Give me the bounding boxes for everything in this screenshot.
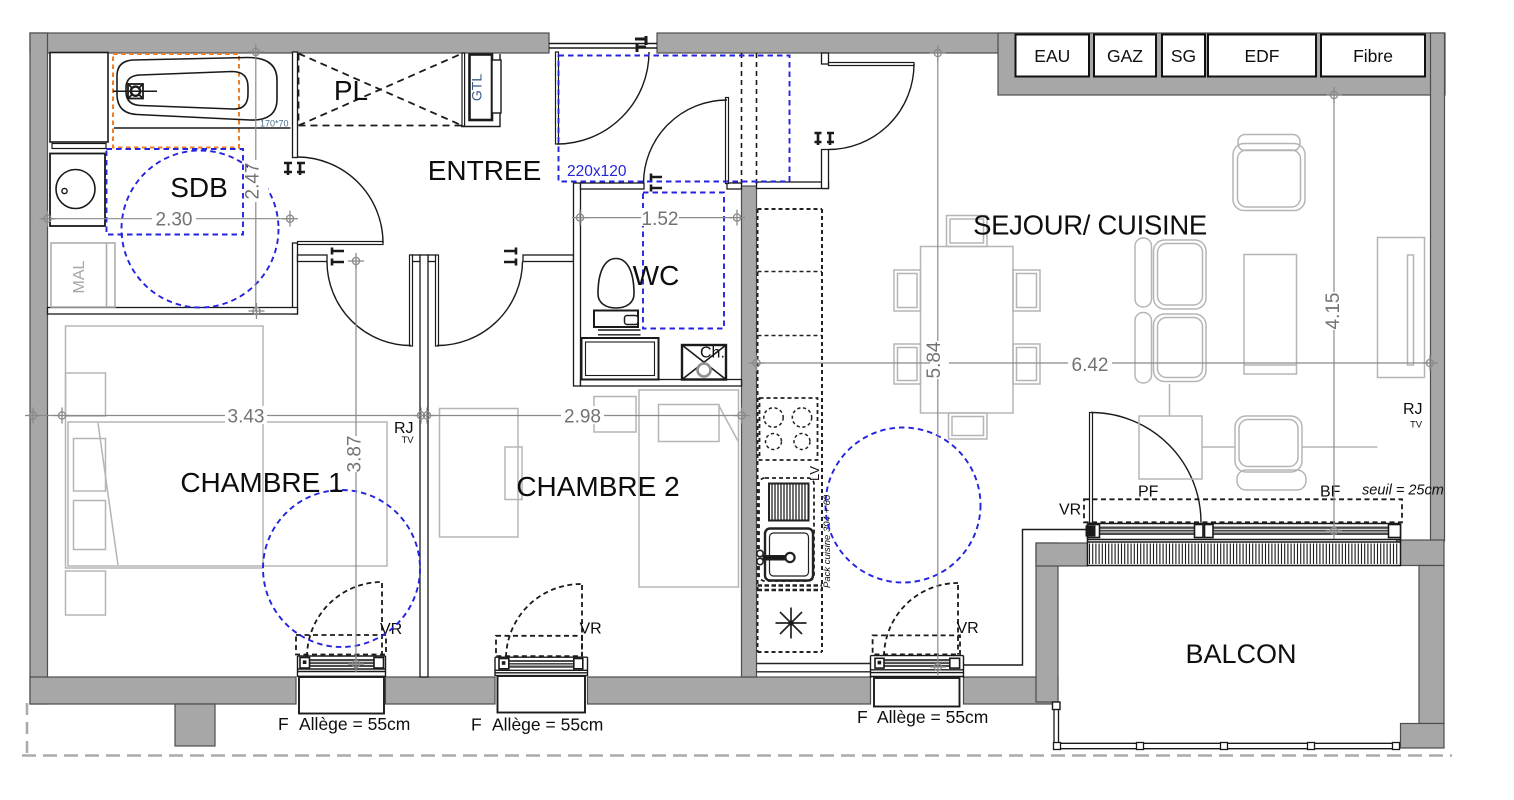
svg-text:F: F (471, 715, 482, 735)
svg-text:2.47: 2.47 (243, 163, 264, 200)
svg-text:CHAMBRE 2: CHAMBRE 2 (516, 471, 679, 502)
svg-text:6.42: 6.42 (1072, 355, 1109, 376)
svg-text:F: F (857, 707, 868, 727)
svg-text:Allège = 55cm: Allège = 55cm (299, 714, 410, 734)
svg-text:GAZ: GAZ (1107, 46, 1143, 66)
svg-text:ENTREE: ENTREE (428, 155, 542, 186)
svg-text:SEJOUR/ CUISINE: SEJOUR/ CUISINE (973, 210, 1207, 241)
svg-text:TV: TV (1410, 420, 1423, 431)
svg-text:PF: PF (1138, 484, 1159, 501)
svg-text:WC: WC (633, 260, 680, 291)
svg-text:F: F (278, 714, 289, 734)
svg-text:PL: PL (334, 75, 368, 106)
svg-text:EDF: EDF (1245, 46, 1280, 66)
svg-text:LV: LV (807, 466, 822, 481)
svg-text:3.87: 3.87 (345, 436, 366, 473)
svg-text:BF: BF (1320, 484, 1341, 501)
svg-text:4.15: 4.15 (1323, 293, 1344, 330)
svg-text:VR: VR (580, 621, 602, 638)
svg-text:VR: VR (957, 620, 979, 637)
svg-text:Allège = 55cm: Allège = 55cm (492, 715, 603, 735)
svg-text:BALCON: BALCON (1185, 639, 1296, 669)
svg-text:Fibre: Fibre (1353, 46, 1393, 66)
svg-text:seuil = 25cm: seuil = 25cm (1362, 483, 1444, 499)
svg-text:2.30: 2.30 (156, 210, 193, 231)
svg-text:170*70: 170*70 (260, 119, 289, 129)
svg-text:Pack cuisine 304 + 60: Pack cuisine 304 + 60 (822, 494, 833, 588)
svg-text:1.52: 1.52 (642, 209, 679, 230)
svg-text:Allège = 55cm: Allège = 55cm (877, 707, 988, 727)
svg-text:CHAMBRE 1: CHAMBRE 1 (180, 467, 343, 498)
svg-text:SG: SG (1171, 46, 1196, 66)
svg-text:EAU: EAU (1034, 46, 1070, 66)
svg-text:RJ: RJ (1403, 401, 1423, 418)
svg-text:VR: VR (1059, 502, 1081, 519)
svg-text:5.84: 5.84 (924, 341, 945, 378)
svg-text:TV: TV (402, 435, 415, 446)
svg-text:SDB: SDB (170, 172, 228, 203)
svg-text:2.98: 2.98 (564, 407, 601, 428)
svg-text:3.43: 3.43 (228, 407, 265, 428)
svg-text:GTL: GTL (469, 74, 485, 101)
svg-text:220x120: 220x120 (567, 163, 627, 180)
svg-text:MAL: MAL (71, 260, 88, 293)
svg-text:Ch.: Ch. (700, 345, 725, 362)
